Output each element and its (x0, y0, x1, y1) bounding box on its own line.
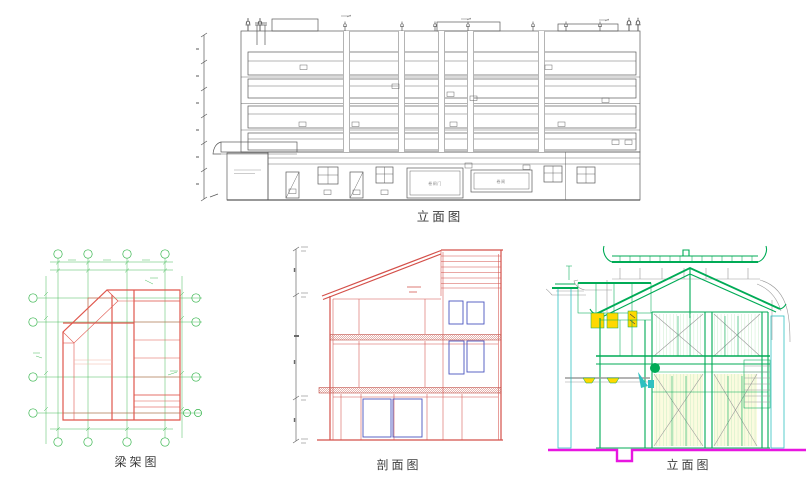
caption-right-elevation: 立面图 (629, 456, 749, 473)
caption-top-elevation: 立面图 (380, 206, 500, 225)
axis-dimension-lines (33, 260, 184, 444)
beam-structure (63, 290, 180, 420)
beam-frame-drawing (28, 243, 240, 475)
section-structure (317, 250, 503, 440)
caption-beam-frame: 梁架图 (77, 453, 197, 470)
section-drawing (283, 240, 520, 475)
shutter-door-label: 卷闸门 (428, 180, 442, 186)
cad-drawing-sheet: 卷闸门 卷闸 (0, 0, 812, 481)
axis-grid (29, 250, 202, 446)
shutter-label: 卷闸 (497, 178, 506, 184)
left-wing (566, 266, 651, 328)
facade-outline (227, 31, 640, 200)
section-dimension-line (293, 247, 308, 443)
traditional-elevation-drawing (546, 238, 808, 472)
left-annex (213, 142, 297, 200)
caption-section: 剖面图 (339, 456, 459, 473)
section-windows (363, 301, 484, 437)
gable-roof (590, 268, 786, 318)
lower-bay-details (565, 363, 660, 388)
main-elevation-drawing: 卷闸门 卷闸 (185, 5, 650, 225)
roof-ridge-ornament (603, 246, 766, 262)
facade-pilasters (343, 31, 545, 152)
elevation-dimension-line (196, 33, 218, 201)
storefront: 卷闸门 卷闸 (268, 152, 640, 200)
